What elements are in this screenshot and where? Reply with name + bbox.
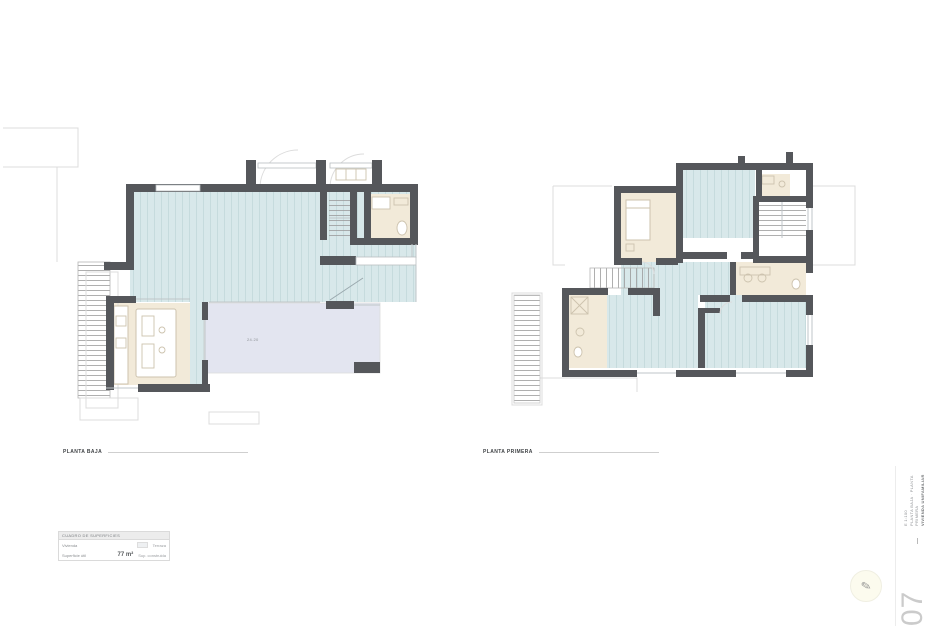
title-block-text: VIVIENDA UNIFAMILIAR PLANTA BAJA · PLANT… bbox=[903, 468, 925, 526]
pencil-icon: ✎ bbox=[860, 578, 873, 594]
sheet-number: 07 bbox=[898, 554, 928, 626]
porch-windows bbox=[258, 163, 372, 180]
legend-note: Terraza bbox=[153, 543, 166, 548]
first-floor-caption-text: PLANTA PRIMERA bbox=[483, 449, 533, 455]
terrace-area-label: 24.20 bbox=[247, 337, 259, 342]
ground-floor-caption-text: PLANTA BAJA bbox=[63, 449, 102, 455]
title-block-tick bbox=[917, 538, 918, 544]
kitchen-fixtures bbox=[114, 306, 176, 384]
drawing-sheet: 24.20 bbox=[0, 0, 945, 630]
legend-label: Superficie útil bbox=[62, 553, 86, 558]
interior-staircase bbox=[329, 196, 351, 240]
areas-legend: CUADRO DE SUPERFICIES Vivienda Terraza S… bbox=[58, 531, 170, 561]
title-line: E 1:100 bbox=[903, 468, 908, 526]
legend-row: Vivienda Terraza bbox=[59, 540, 169, 550]
title-line: PLANTA BAJA · PLANTA PRIMERA bbox=[909, 468, 919, 526]
legend-swatch bbox=[137, 542, 148, 548]
title-line: VIVIENDA UNIFAMILIAR bbox=[920, 468, 925, 526]
first-floor-caption: PLANTA PRIMERA bbox=[483, 449, 659, 455]
legend-area-value: 77 m² bbox=[118, 552, 134, 558]
legend-label: Vivienda bbox=[62, 543, 77, 548]
legend-header: CUADRO DE SUPERFICIES bbox=[59, 532, 169, 540]
legend-note: Sup. construida bbox=[138, 553, 166, 558]
architect-logo: ✎ bbox=[850, 570, 882, 602]
caption-rule bbox=[108, 452, 248, 453]
ground-floor-plan: 24.20 bbox=[3, 128, 418, 424]
caption-rule bbox=[539, 452, 659, 453]
interior-staircase bbox=[759, 200, 806, 238]
legend-row: Superficie útil 77 m² Sup. construida bbox=[59, 550, 169, 560]
ground-floor-caption: PLANTA BAJA bbox=[63, 449, 248, 455]
first-floor-plan bbox=[512, 152, 855, 405]
